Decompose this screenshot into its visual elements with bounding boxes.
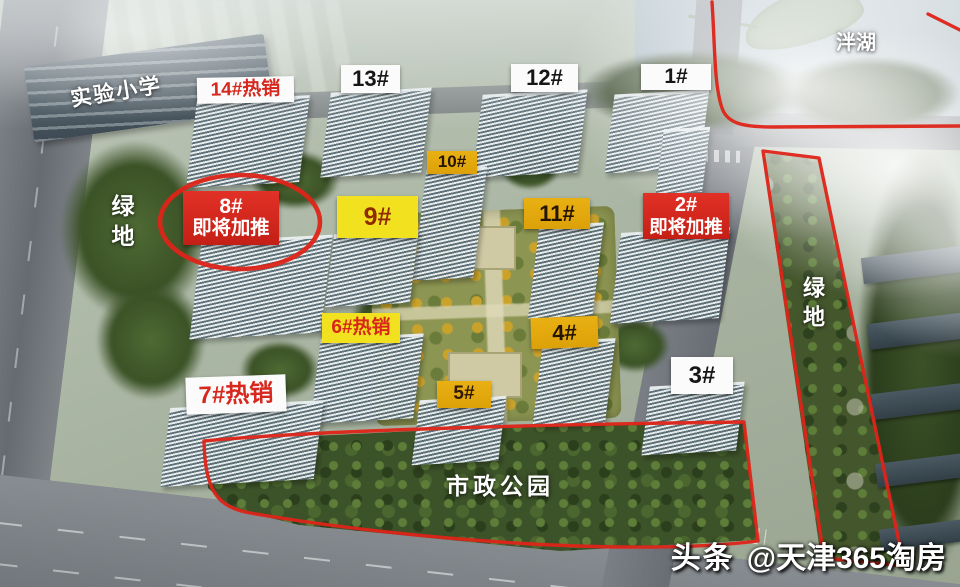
building-tag-7: 7#热销 [185, 374, 286, 414]
tag-text: 5# [453, 384, 474, 405]
park-label: 市政公园 [446, 467, 554, 501]
residential-tower [610, 227, 730, 324]
lake-label: 泮湖 [836, 26, 876, 55]
watermark-account: @天津365淘房 [747, 533, 946, 577]
building-tag-5: 5# [437, 381, 491, 408]
tree-grove [780, 56, 960, 132]
tag-text: 1# [664, 66, 687, 89]
tag-text: 11# [539, 202, 575, 226]
building-tag-14: 14#热销 [197, 76, 294, 104]
green-space-label-left: 绿地 [104, 194, 138, 254]
residential-tower [656, 127, 710, 194]
building-tag-12: 12# [511, 64, 578, 92]
building-tag-6: 6#热销 [322, 313, 400, 343]
aerial-site-plan: 实验小学 泮湖 绿地 绿地 市政公园 14#热销 13# 12# 1# 10# … [0, 0, 960, 587]
building-tag-8: 8# 即将加推 [183, 191, 279, 245]
building-tag-1: 1# [641, 64, 711, 90]
residential-tower [161, 400, 324, 487]
tag-text: 12# [526, 66, 563, 90]
residential-tower [320, 87, 431, 177]
building-tag-13: 13# [341, 65, 400, 93]
tag-text: 9# [364, 204, 392, 231]
tag-text: 3# [689, 363, 716, 389]
tag-text: 14#热销 [210, 79, 280, 101]
green-space-label-right: 绿地 [796, 276, 828, 334]
tag-text: 7#热销 [198, 380, 274, 408]
tag-text: 8# [219, 196, 242, 219]
tag-text: 4# [552, 320, 577, 345]
building-tag-9: 9# [337, 196, 418, 238]
tag-text: 13# [352, 67, 389, 91]
tag-text: 10# [438, 153, 466, 171]
tag-subtext: 即将加推 [649, 217, 723, 237]
tag-subtext: 即将加推 [192, 219, 269, 240]
building-tag-2: 2# 即将加推 [643, 193, 729, 239]
residential-tower [310, 333, 423, 423]
residential-tower [528, 222, 604, 318]
tag-text: 2# [675, 195, 697, 217]
watermark: 头条 @天津365淘房 [671, 533, 946, 577]
residential-tower [532, 338, 615, 427]
building-tag-3: 3# [671, 357, 733, 394]
building-tag-11: 11# [524, 198, 590, 229]
tag-text: 6#热销 [331, 318, 390, 339]
residential-tower [325, 230, 419, 307]
residential-tower [472, 89, 587, 177]
building-tag-10: 10# [427, 151, 477, 174]
watermark-brand: 头条 [671, 533, 735, 577]
building-tag-4: 4# [530, 316, 598, 349]
residential-tower [189, 235, 332, 340]
residential-tower [186, 95, 310, 188]
